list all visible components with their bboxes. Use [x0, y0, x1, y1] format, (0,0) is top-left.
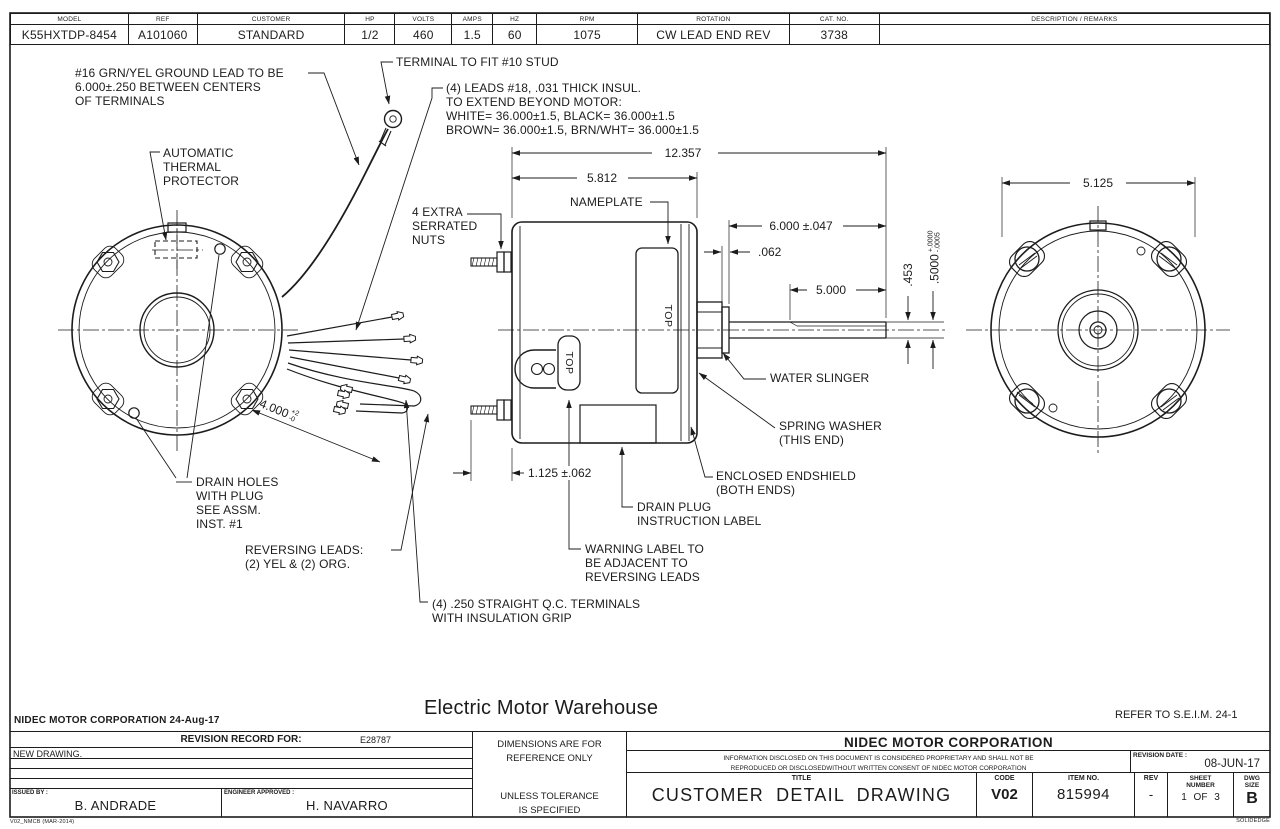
spec-value: 1.5 — [452, 25, 492, 44]
item-value: 815994 — [1033, 786, 1134, 803]
spec-col-rotation: ROTATIONCW LEAD END REV — [638, 14, 790, 44]
engineer-approved-cell: ENGINEER APPROVED : H. NAVARRO — [222, 789, 472, 817]
mounting-stud-bottom — [471, 400, 511, 420]
customer-detail-drawing: MODELK55HXTDP-8454 REFA101060 CUSTOMERST… — [0, 0, 1280, 829]
side-view — [471, 222, 948, 443]
spec-label: VOLTS — [395, 14, 451, 25]
tol-minus: -.0005 — [935, 231, 942, 253]
item-label: ITEM NO. — [1033, 773, 1134, 783]
spec-col-catno: CAT. NO.3738 — [790, 14, 880, 44]
empty-row — [10, 779, 472, 789]
spec-value — [880, 25, 1269, 44]
issued-by-cell: ISSUED BY : B. ANDRADE — [10, 789, 222, 817]
dim-slinger-width: .062 — [757, 245, 782, 259]
spec-value: 3738 — [790, 25, 879, 44]
engineer-approved-value: H. NAVARRO — [222, 798, 472, 813]
revision-date-label: REVISION DATE : — [1133, 752, 1187, 759]
title-block: REVISION RECORD FOR: E28787 NEW DRAWING.… — [10, 731, 1270, 817]
dim-shaft-dia-2: .5000 +.0000 -.0005 — [928, 225, 943, 289]
signature-row: ISSUED BY : B. ANDRADE ENGINEER APPROVED… — [10, 789, 472, 817]
revision-record-block: REVISION RECORD FOR: E28787 NEW DRAWING.… — [10, 732, 473, 817]
code-cell: CODE V02 — [976, 773, 1032, 817]
rev-cell: REV - — [1134, 773, 1167, 817]
spec-col-hz: HZ60 — [493, 14, 537, 44]
callout-drain-plug: DRAIN PLUG INSTRUCTION LABEL — [637, 500, 761, 528]
tol-plus: +.0000 — [928, 231, 935, 253]
dims-reference-note: DIMENSIONS ARE FOR REFERENCE ONLY — [473, 738, 626, 767]
thermal-protector-outline — [155, 241, 197, 258]
shaft-end-view — [966, 206, 1230, 454]
spec-label: AMPS — [452, 14, 492, 25]
title-label: TITLE — [627, 773, 976, 783]
code-label: CODE — [977, 773, 1032, 783]
revision-record-label: REVISION RECORD FOR: — [10, 734, 472, 745]
drain-hole-bottom — [129, 408, 139, 418]
top-marker-nameplate: TOP — [662, 303, 674, 329]
proprietary-note: INFORMATION DISCLOSED ON THIS DOCUMENT I… — [627, 751, 1130, 772]
spec-value: CW LEAD END REV — [638, 25, 789, 44]
sheet-cell: SHEET NUMBER 1 OF 3 — [1167, 773, 1233, 817]
dim-shaft-ext: 6.000 ±.047 — [768, 219, 833, 233]
ring-terminal — [385, 111, 402, 128]
callout-leads-note: (4) LEADS #18, .031 THICK INSUL. TO EXTE… — [446, 81, 699, 137]
item-cell: ITEM NO. 815994 — [1032, 773, 1134, 817]
callout-nameplate: NAMEPLATE — [570, 195, 643, 209]
spec-label: REF — [129, 14, 197, 25]
spec-label: DESCRIPTION / REMARKS — [880, 14, 1269, 25]
spec-value: 460 — [395, 25, 451, 44]
spec-value: K55HXTDP-8454 — [11, 25, 128, 44]
callout-reversing-leads: REVERSING LEADS: (2) YEL & (2) ORG. — [245, 543, 363, 571]
dim-shaft-dia-2-value: .5000 — [928, 254, 942, 284]
spec-value: 1075 — [537, 25, 637, 44]
spec-label: CAT. NO. — [790, 14, 879, 25]
cad-note: SOLIDEDGE — [1200, 818, 1270, 824]
top-marker-tag: TOP — [563, 350, 575, 376]
spec-col-description: DESCRIPTION / REMARKS — [880, 14, 1269, 44]
callout-water-slinger: WATER SLINGER — [770, 371, 869, 385]
callout-spring-washer: SPRING WASHER (THIS END) — [779, 419, 882, 447]
dim-shaft-dia-1: .453 — [901, 256, 915, 294]
size-value: B — [1234, 790, 1270, 808]
callout-qc-terminals: (4) .250 STRAIGHT Q.C. TERMINALS WITH IN… — [432, 597, 640, 625]
spec-label: CUSTOMER — [198, 14, 345, 25]
callout-warning-label: WARNING LABEL TO BE ADJACENT TO REVERSIN… — [585, 542, 704, 584]
engineer-approved-label: ENGINEER APPROVED : — [224, 790, 294, 796]
ground-lead-wire — [282, 129, 388, 297]
spec-col-ref: REFA101060 — [129, 14, 198, 44]
form-id: V02_NMCB (MAR-2014) — [10, 819, 74, 825]
revision-record-number: E28787 — [360, 735, 391, 745]
spec-label: RPM — [537, 14, 637, 25]
spec-label: MODEL — [11, 14, 128, 25]
dim-stud-length: 1.125 ±.062 — [527, 466, 592, 480]
spec-col-customer: CUSTOMERSTANDARD — [198, 14, 346, 44]
callout-endshield: ENCLOSED ENDSHIELD (BOTH ENDS) — [716, 469, 856, 497]
lead-grommet — [515, 350, 556, 388]
dim-shaft-dia-2-tolerance: +.0000 -.0005 — [928, 231, 943, 253]
empty-row — [10, 759, 472, 769]
drain-hole-top — [215, 244, 225, 254]
revision-note: NEW DRAWING. — [10, 748, 472, 759]
spec-col-amps: AMPS1.5 — [452, 14, 493, 44]
spec-value: A101060 — [129, 25, 197, 44]
title-row: TITLE CUSTOMER DETAIL DRAWING CODE V02 I… — [627, 773, 1270, 817]
proprietary-row: INFORMATION DISCLOSED ON THIS DOCUMENT I… — [627, 751, 1270, 773]
callout-extra-nuts: 4 EXTRA SERRATED NUTS — [412, 205, 477, 247]
spec-col-hp: HP1/2 — [345, 14, 395, 44]
spec-label: ROTATION — [638, 14, 789, 25]
watermark: Electric Motor Warehouse — [424, 697, 658, 720]
sheet-label: SHEET NUMBER — [1168, 773, 1233, 790]
dim-body-length: 5.812 — [586, 171, 618, 185]
issued-by-value: B. ANDRADE — [10, 798, 221, 813]
size-label: DWG SIZE — [1234, 773, 1270, 790]
dim-overall-length: 12.357 — [664, 146, 703, 160]
lead-end-view — [58, 111, 423, 453]
title-cell: TITLE CUSTOMER DETAIL DRAWING — [627, 773, 976, 817]
dim-shaft-flat: 5.000 — [815, 283, 847, 297]
rev-value: - — [1135, 787, 1167, 802]
revision-date-value: 08-JUN-17 — [1204, 758, 1260, 770]
lead-wires — [287, 311, 423, 416]
tolerance-note: UNLESS TOLERANCE IS SPECIFIED — [473, 790, 626, 818]
spec-value: 1/2 — [345, 25, 394, 44]
empty-row — [10, 769, 472, 779]
issued-by-label: ISSUED BY : — [12, 790, 48, 796]
callout-thermal-protector: AUTOMATIC THERMAL PROTECTOR — [163, 146, 239, 188]
revision-date-cell: REVISION DATE : 08-JUN-17 — [1130, 751, 1270, 772]
sheet-value: 1 OF 3 — [1168, 792, 1233, 803]
code-value: V02 — [977, 786, 1032, 803]
dim-bolt-circle: 5.125 — [1082, 176, 1114, 190]
label-outline — [580, 405, 656, 443]
drawing-title: CUSTOMER DETAIL DRAWING — [627, 785, 976, 806]
spec-col-rpm: RPM1075 — [537, 14, 638, 44]
reference-note-block: DIMENSIONS ARE FOR REFERENCE ONLY UNLESS… — [473, 732, 627, 817]
refer-note: REFER TO S.E.I.M. 24-1 — [1115, 709, 1237, 721]
spec-value: STANDARD — [198, 25, 345, 44]
spec-col-volts: VOLTS460 — [395, 14, 452, 44]
spec-table: MODELK55HXTDP-8454 REFA101060 CUSTOMERST… — [10, 13, 1270, 45]
spec-col-model: MODELK55HXTDP-8454 — [11, 14, 129, 44]
revision-record-row: REVISION RECORD FOR: E28787 — [10, 732, 472, 748]
company-block: NIDEC MOTOR CORPORATION INFORMATION DISC… — [627, 732, 1270, 817]
callout-ground-lead: #16 GRN/YEL GROUND LEAD TO BE 6.000±.250… — [75, 66, 284, 108]
mounting-stud-top — [471, 252, 511, 272]
issuer-line: NIDEC MOTOR CORPORATION 24-Aug-17 — [14, 715, 220, 726]
rev-label: REV — [1135, 773, 1167, 783]
company-name: NIDEC MOTOR CORPORATION — [627, 732, 1270, 751]
callout-terminal-stud: TERMINAL TO FIT #10 STUD — [396, 55, 559, 69]
spec-label: HP — [345, 14, 394, 25]
spec-label: HZ — [493, 14, 536, 25]
size-cell: DWG SIZE B — [1233, 773, 1270, 817]
motor-body — [512, 222, 697, 443]
callout-drain-holes: DRAIN HOLES WITH PLUG SEE ASSM. INST. #1 — [196, 475, 278, 531]
spec-value: 60 — [493, 25, 536, 44]
